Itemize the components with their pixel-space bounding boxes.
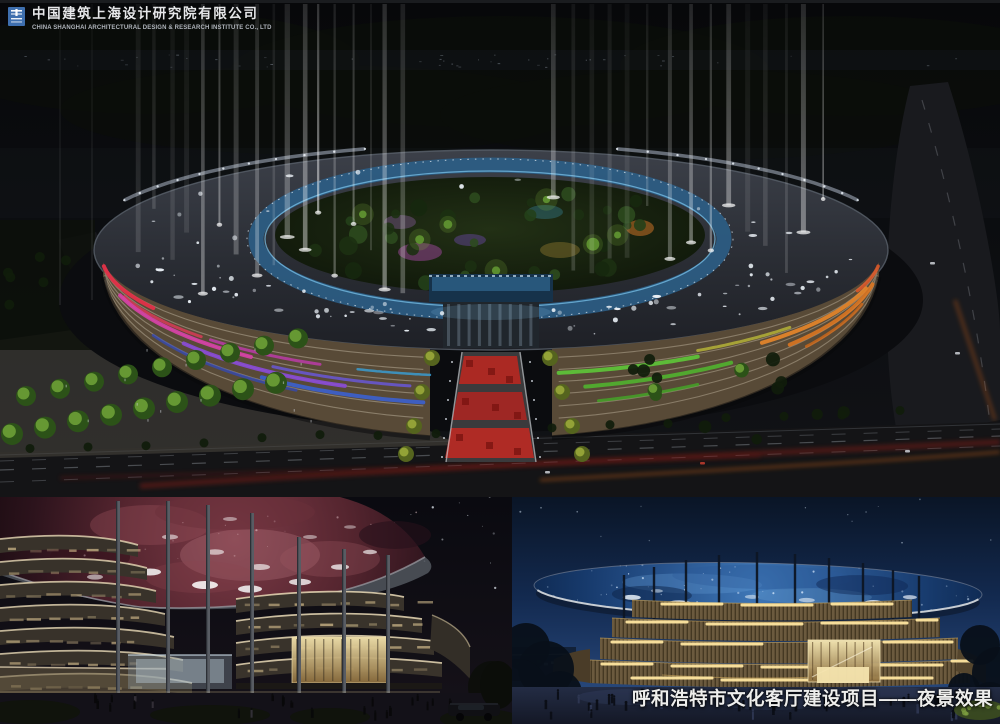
main-render bbox=[0, 0, 1000, 497]
forest-horizon bbox=[0, 10, 1000, 160]
glass-bridge-glow bbox=[432, 277, 550, 291]
cscec-logo-icon bbox=[8, 7, 25, 26]
main-render-svg bbox=[0, 0, 1000, 497]
fountain-glow bbox=[431, 304, 551, 320]
top-edge bbox=[0, 0, 1000, 3]
company-header: 中国建筑上海设计研究院有限公司 CHINA SHANGHAI ARCHITECT… bbox=[8, 7, 279, 31]
entrance-glow bbox=[817, 667, 869, 683]
bottom-left-render-svg bbox=[0, 497, 512, 724]
project-caption: 呼和浩特市文化客厅建设项目——夜景效果 bbox=[632, 685, 993, 711]
presentation-board: 中国建筑上海设计研究院有限公司 CHINA SHANGHAI ARCHITECT… bbox=[0, 0, 1000, 724]
pavilion-screen bbox=[136, 659, 224, 683]
company-name-en: CHINA SHANGHAI ARCHITECTURAL DESIGN & RE… bbox=[32, 24, 272, 31]
bottom-left-render bbox=[0, 497, 512, 724]
company-name-cn: 中国建筑上海设计研究院有限公司 bbox=[32, 7, 279, 21]
ground-light-strip bbox=[0, 691, 440, 693]
